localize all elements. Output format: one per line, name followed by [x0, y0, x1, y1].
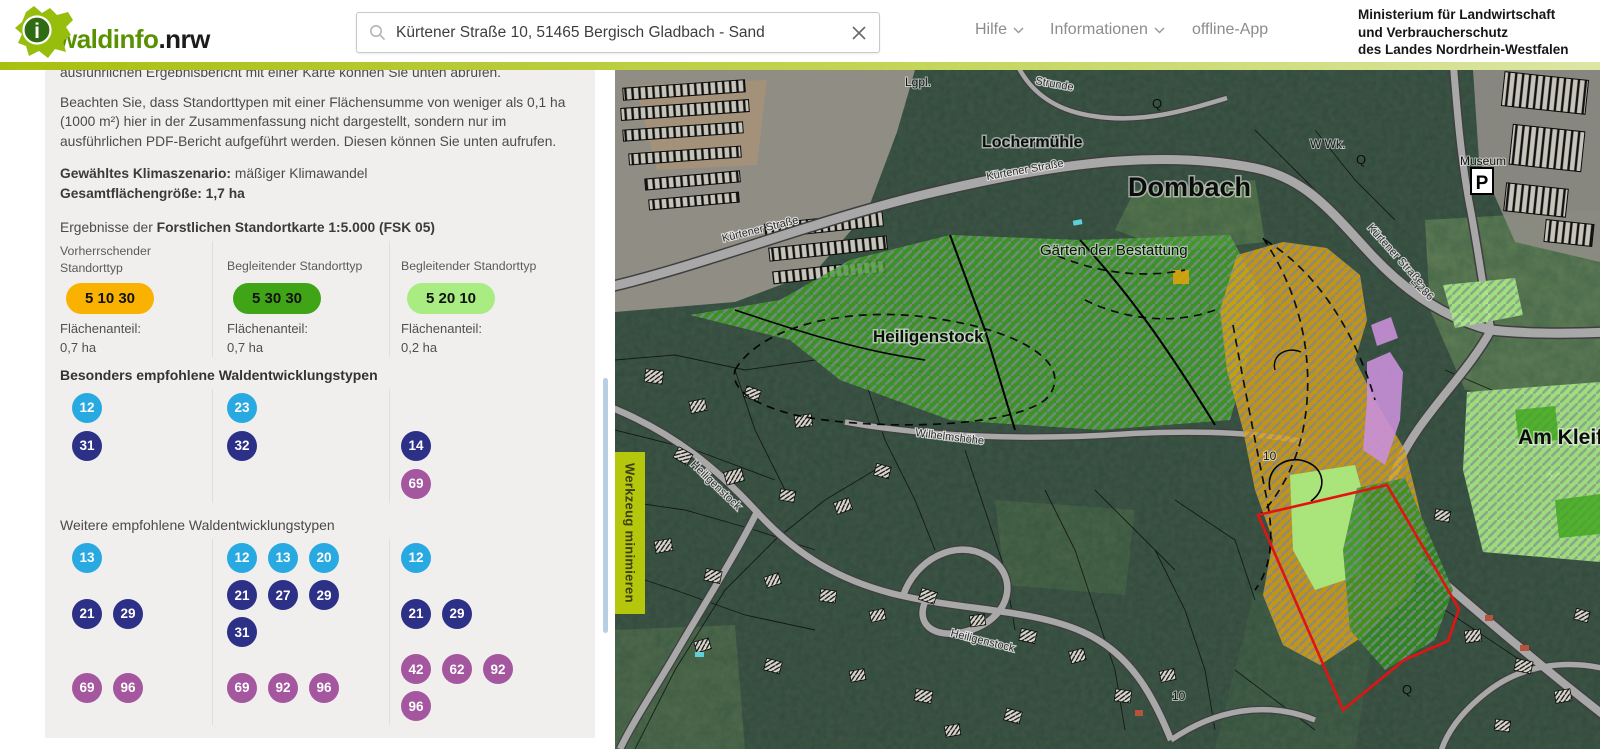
wet-badge: 31	[72, 431, 102, 461]
waldinfo-nrw-logo: i	[10, 2, 340, 62]
map-label: Lochermühle	[982, 134, 1083, 151]
standorttyp-role: Begleitender Standorttyp	[401, 243, 580, 279]
map-label: Heiligenstock	[873, 327, 984, 346]
klimaszenario-row: Gewähltes Klimaszenario: mäßiger Klimawa…	[60, 164, 580, 184]
chevron-down-icon	[1154, 27, 1165, 34]
wet-col: 12 21 29 42 62 92 96	[389, 539, 580, 725]
map-label: Lgpl.	[905, 75, 931, 89]
wet-badge: 14	[401, 431, 431, 461]
nav-informationen-label: Informationen	[1050, 21, 1148, 39]
wet-badge: 42	[401, 654, 431, 684]
map-label: W Wk.	[1310, 137, 1345, 151]
map-label: Gärten der Bestattung	[1040, 242, 1188, 259]
nav-hilfe[interactable]: Hilfe	[975, 21, 1024, 39]
wet-badge: 29	[442, 599, 472, 629]
ergebnisse-heading: Ergebnisse der Forstlichen Standortkarte…	[60, 218, 580, 238]
map-label: 10	[1172, 689, 1186, 703]
gesamtflaeche-row: Gesamtflächengröße: 1,7 ha	[60, 184, 580, 204]
wet-badge: 92	[268, 673, 298, 703]
info-icon-glyph: i	[34, 20, 40, 43]
wet-badge: 69	[72, 673, 102, 703]
weitere-grid: 13 21 29 69 96 12 13 20 21 27 29 31	[60, 539, 580, 725]
anteil-value: 0,7 ha	[227, 339, 389, 357]
besonders-grid: 12 31 23 32 14 69	[60, 389, 580, 503]
map-label: 10	[1263, 449, 1277, 463]
wet-badge: 13	[268, 543, 298, 573]
chevron-down-icon	[1013, 27, 1024, 34]
map-canvas[interactable]: P Lgpl. Strunde Lochermühle Dombach Gärt…	[615, 70, 1600, 749]
standorttyp-col: Vorherrschender Standorttyp 5 10 30 Fläc…	[60, 241, 212, 357]
ergebnisse-title: Forstlichen Standortkarte 1:5.000 (FSK 0…	[157, 220, 435, 235]
notice-text: Beachten Sie, dass Standorttypen mit ein…	[60, 93, 580, 152]
ergebnisse-prefix: Ergebnisse der	[60, 220, 157, 235]
wet-badge: 92	[483, 654, 513, 684]
result-panel: ausführlichen Ergebnisbericht mit einer …	[45, 70, 595, 738]
wet-badge: 96	[401, 691, 431, 721]
minimize-tool-tab[interactable]: Werkzeug minimieren	[615, 452, 645, 614]
standorttyp-badge: 5 30 30	[233, 283, 321, 314]
wet-badge: 69	[227, 673, 257, 703]
panel-scrollbar-thumb[interactable]	[603, 378, 608, 633]
ministry-wordmark: Ministerium für Landwirtschaft und Verbr…	[1358, 6, 1569, 59]
wet-col: 23 32	[212, 389, 389, 503]
ministry-line: und Verbraucherschutz	[1358, 24, 1569, 42]
wet-badge: 29	[309, 580, 339, 610]
anteil-label: Flächenanteil:	[227, 320, 389, 338]
wet-badge: 96	[309, 673, 339, 703]
search-icon	[369, 24, 386, 41]
wet-badge: 29	[113, 599, 143, 629]
map-label: Museum	[1460, 154, 1506, 168]
nav-informationen[interactable]: Informationen	[1050, 21, 1165, 39]
wet-badge: 96	[113, 673, 143, 703]
wet-badge: 20	[309, 543, 339, 573]
standorttyp-col: Begleitender Standorttyp 5 30 30 Flächen…	[212, 241, 389, 357]
klimaszenario-label: Gewähltes Klimaszenario:	[60, 166, 231, 181]
ministry-line: Ministerium für Landwirtschaft	[1358, 6, 1569, 24]
wet-badge: 23	[227, 393, 257, 423]
weitere-heading: Weitere empfohlene Waldentwicklungstypen	[60, 516, 580, 536]
wet-col: 12 13 20 21 27 29 31 69 92 96	[212, 539, 389, 725]
wet-col: 14 69	[389, 389, 580, 503]
wet-badge: 21	[401, 599, 431, 629]
standorttyp-badge: 5 10 30	[66, 283, 154, 314]
wet-badge: 12	[401, 543, 431, 573]
app-header: i waldinfo.nrw Hilfe Informationen offli…	[0, 0, 1600, 62]
address-search[interactable]	[356, 12, 880, 53]
wet-badge: 32	[227, 431, 257, 461]
accent-bar	[0, 62, 1600, 70]
gesamtflaeche-value: 1,7 ha	[202, 186, 245, 201]
map-label: Q	[1402, 682, 1412, 697]
klimaszenario-value: mäßiger Klimawandel	[231, 166, 368, 181]
wet-badge: 69	[401, 469, 431, 499]
ministry-line: des Landes Nordrhein-Westfalen	[1358, 41, 1569, 59]
wet-col: 13 21 29 69 96	[60, 539, 212, 725]
besonders-heading: Besonders empfohlene Waldentwicklungstyp…	[60, 366, 580, 386]
wet-badge: 27	[268, 580, 298, 610]
wet-badge: 13	[72, 543, 102, 573]
wet-badge: 21	[72, 599, 102, 629]
wet-badge: 21	[227, 580, 257, 610]
clear-search-icon[interactable]	[851, 25, 867, 41]
wet-col: 12 31	[60, 389, 212, 503]
standorttyp-badge: 5 20 10	[407, 283, 495, 314]
standorttyp-columns: Vorherrschender Standorttyp 5 10 30 Fläc…	[60, 241, 580, 357]
standorttyp-col: Begleitender Standorttyp 5 20 10 Flächen…	[389, 241, 580, 357]
anteil-label: Flächenanteil:	[60, 320, 212, 338]
gesamtflaeche-label: Gesamtflächengröße:	[60, 186, 202, 201]
search-input[interactable]	[396, 24, 851, 42]
nav-offline-app[interactable]: offline-App	[1192, 21, 1268, 39]
standorttyp-role: Vorherrschender Standorttyp	[60, 243, 212, 279]
wet-badge: 12	[227, 543, 257, 573]
nav-offline-app-label: offline-App	[1192, 21, 1268, 39]
wet-badge: 62	[442, 654, 472, 684]
anteil-label: Flächenanteil:	[401, 320, 580, 338]
standorttyp-role: Begleitender Standorttyp	[227, 243, 389, 279]
map-label: Q	[1356, 152, 1366, 167]
parking-icon: P	[1471, 168, 1493, 194]
map-label: Q	[1152, 96, 1162, 111]
clipped-report-line: ausführlichen Ergebnisbericht mit einer …	[60, 70, 580, 83]
wet-badge: 12	[72, 393, 102, 423]
parking-glyph: P	[1476, 173, 1489, 194]
map-label: Dombach	[1128, 172, 1251, 202]
nav-hilfe-label: Hilfe	[975, 21, 1007, 39]
anteil-value: 0,2 ha	[401, 339, 580, 357]
anteil-value: 0,7 ha	[60, 339, 212, 357]
wet-badge: 31	[227, 617, 257, 647]
map-label: Am Kleife	[1518, 426, 1600, 449]
